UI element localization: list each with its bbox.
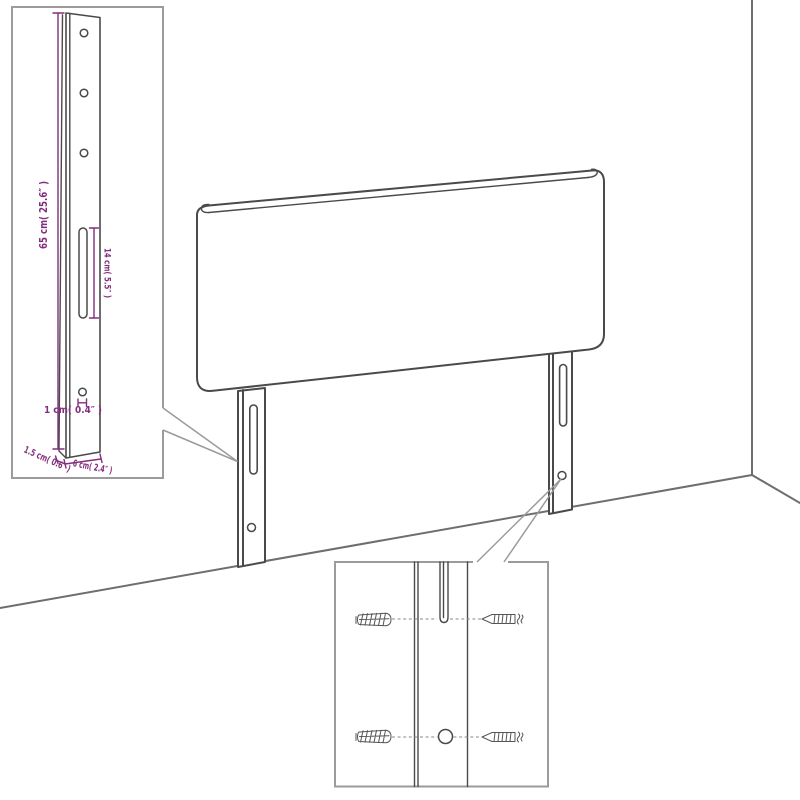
floor-line-left xyxy=(0,475,752,608)
height-dimension-label: 65 cm( 25.6″ ) xyxy=(37,181,50,249)
leg-hole-middle xyxy=(80,89,88,97)
wall-anchor-icon xyxy=(356,613,391,626)
leg-left-edge-lines xyxy=(415,562,419,787)
leg-dimension-inset: 65 cm( 25.6″ ) 14 cm( 5.5″ ) 1 cm( 0.4″ … xyxy=(12,7,163,478)
callout-line xyxy=(504,479,561,562)
diagram-canvas: 65 cm( 25.6″ ) 14 cm( 5.5″ ) 1 cm( 0.4″ … xyxy=(0,0,800,800)
leg-hole-closeup xyxy=(439,730,453,744)
screw-icon xyxy=(482,732,523,742)
mounting-hardware-inset xyxy=(335,562,548,787)
callout-lines xyxy=(163,408,561,562)
leg-hole-lower xyxy=(80,149,88,157)
screw-icon xyxy=(482,614,523,624)
width-dimension-label: 6 cm( 2.4″ ) xyxy=(72,458,113,476)
leg-slot-detail xyxy=(79,228,87,318)
floor-line-right xyxy=(752,475,800,503)
left-mounting-leg xyxy=(238,388,265,567)
right-leg-slot xyxy=(560,365,567,427)
leg-side-face xyxy=(59,15,66,458)
left-leg-screw-hole xyxy=(248,524,256,532)
slot-dimension-label: 14 cm( 5.5″ ) xyxy=(102,248,112,298)
panel-outline xyxy=(197,170,604,391)
hole-dimension-label: 1 cm( 0.4″ ) xyxy=(44,405,102,416)
inset-frame xyxy=(335,562,548,787)
assembly-diagram: 65 cm( 25.6″ ) 14 cm( 5.5″ ) 1 cm( 0.4″ … xyxy=(0,0,800,800)
leg-closeup xyxy=(415,562,468,787)
leg-small-hole xyxy=(79,388,87,396)
left-leg-slot xyxy=(250,405,257,474)
wall-anchor-icon xyxy=(356,730,391,743)
leg-hole-top xyxy=(80,29,88,37)
right-mounting-leg xyxy=(549,351,572,515)
right-leg-screw-hole xyxy=(558,472,566,480)
headboard-panel xyxy=(197,169,604,391)
